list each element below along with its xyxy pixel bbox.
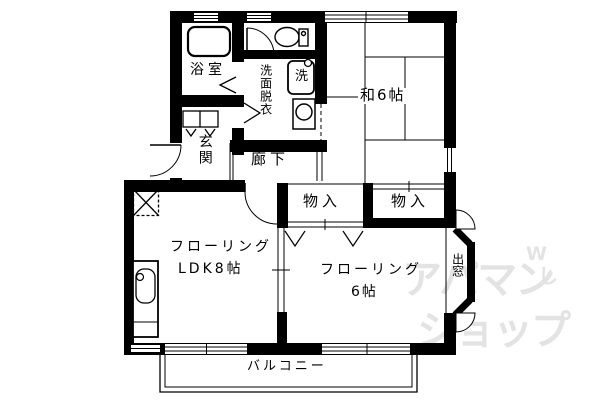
closet-door-marks (285, 231, 363, 246)
bay-window-label: 出窓 (451, 253, 464, 277)
washroom-door-mark (244, 103, 260, 123)
refrigerator-space-icon (134, 190, 159, 216)
washbasin-icon (293, 99, 315, 129)
shoe-cabinet-icon (183, 111, 218, 136)
bath-door-mark (220, 77, 236, 93)
ldk-door (245, 183, 277, 224)
closet-left-label: 物入 (303, 194, 341, 210)
floorplan: アパマン W し ショップ (0, 0, 600, 400)
washroom-label: 洗面脱衣 (259, 64, 272, 116)
western-room-label-line2: 6帖 (351, 285, 378, 300)
ldk-label-line1: フローリング (170, 240, 272, 255)
kitchen-sink-icon (133, 261, 158, 337)
bath-label: 浴室 (190, 63, 226, 78)
hallway-label: 廊下 (251, 152, 289, 168)
bathtub-icon (188, 27, 230, 56)
laundry-label: 洗 (295, 70, 308, 84)
toilet-icon (275, 28, 308, 47)
western-room-label-line1: フローリング (320, 263, 422, 278)
closet-right-label: 物入 (391, 194, 429, 210)
balcony-label: バルコニー (247, 360, 327, 374)
entrance-label: 玄関 (197, 134, 212, 166)
ldk-label-line2: LDK8帖 (178, 262, 244, 277)
floorplan-drawing (0, 0, 600, 400)
japanese-room-label: 和6帖 (358, 88, 408, 104)
